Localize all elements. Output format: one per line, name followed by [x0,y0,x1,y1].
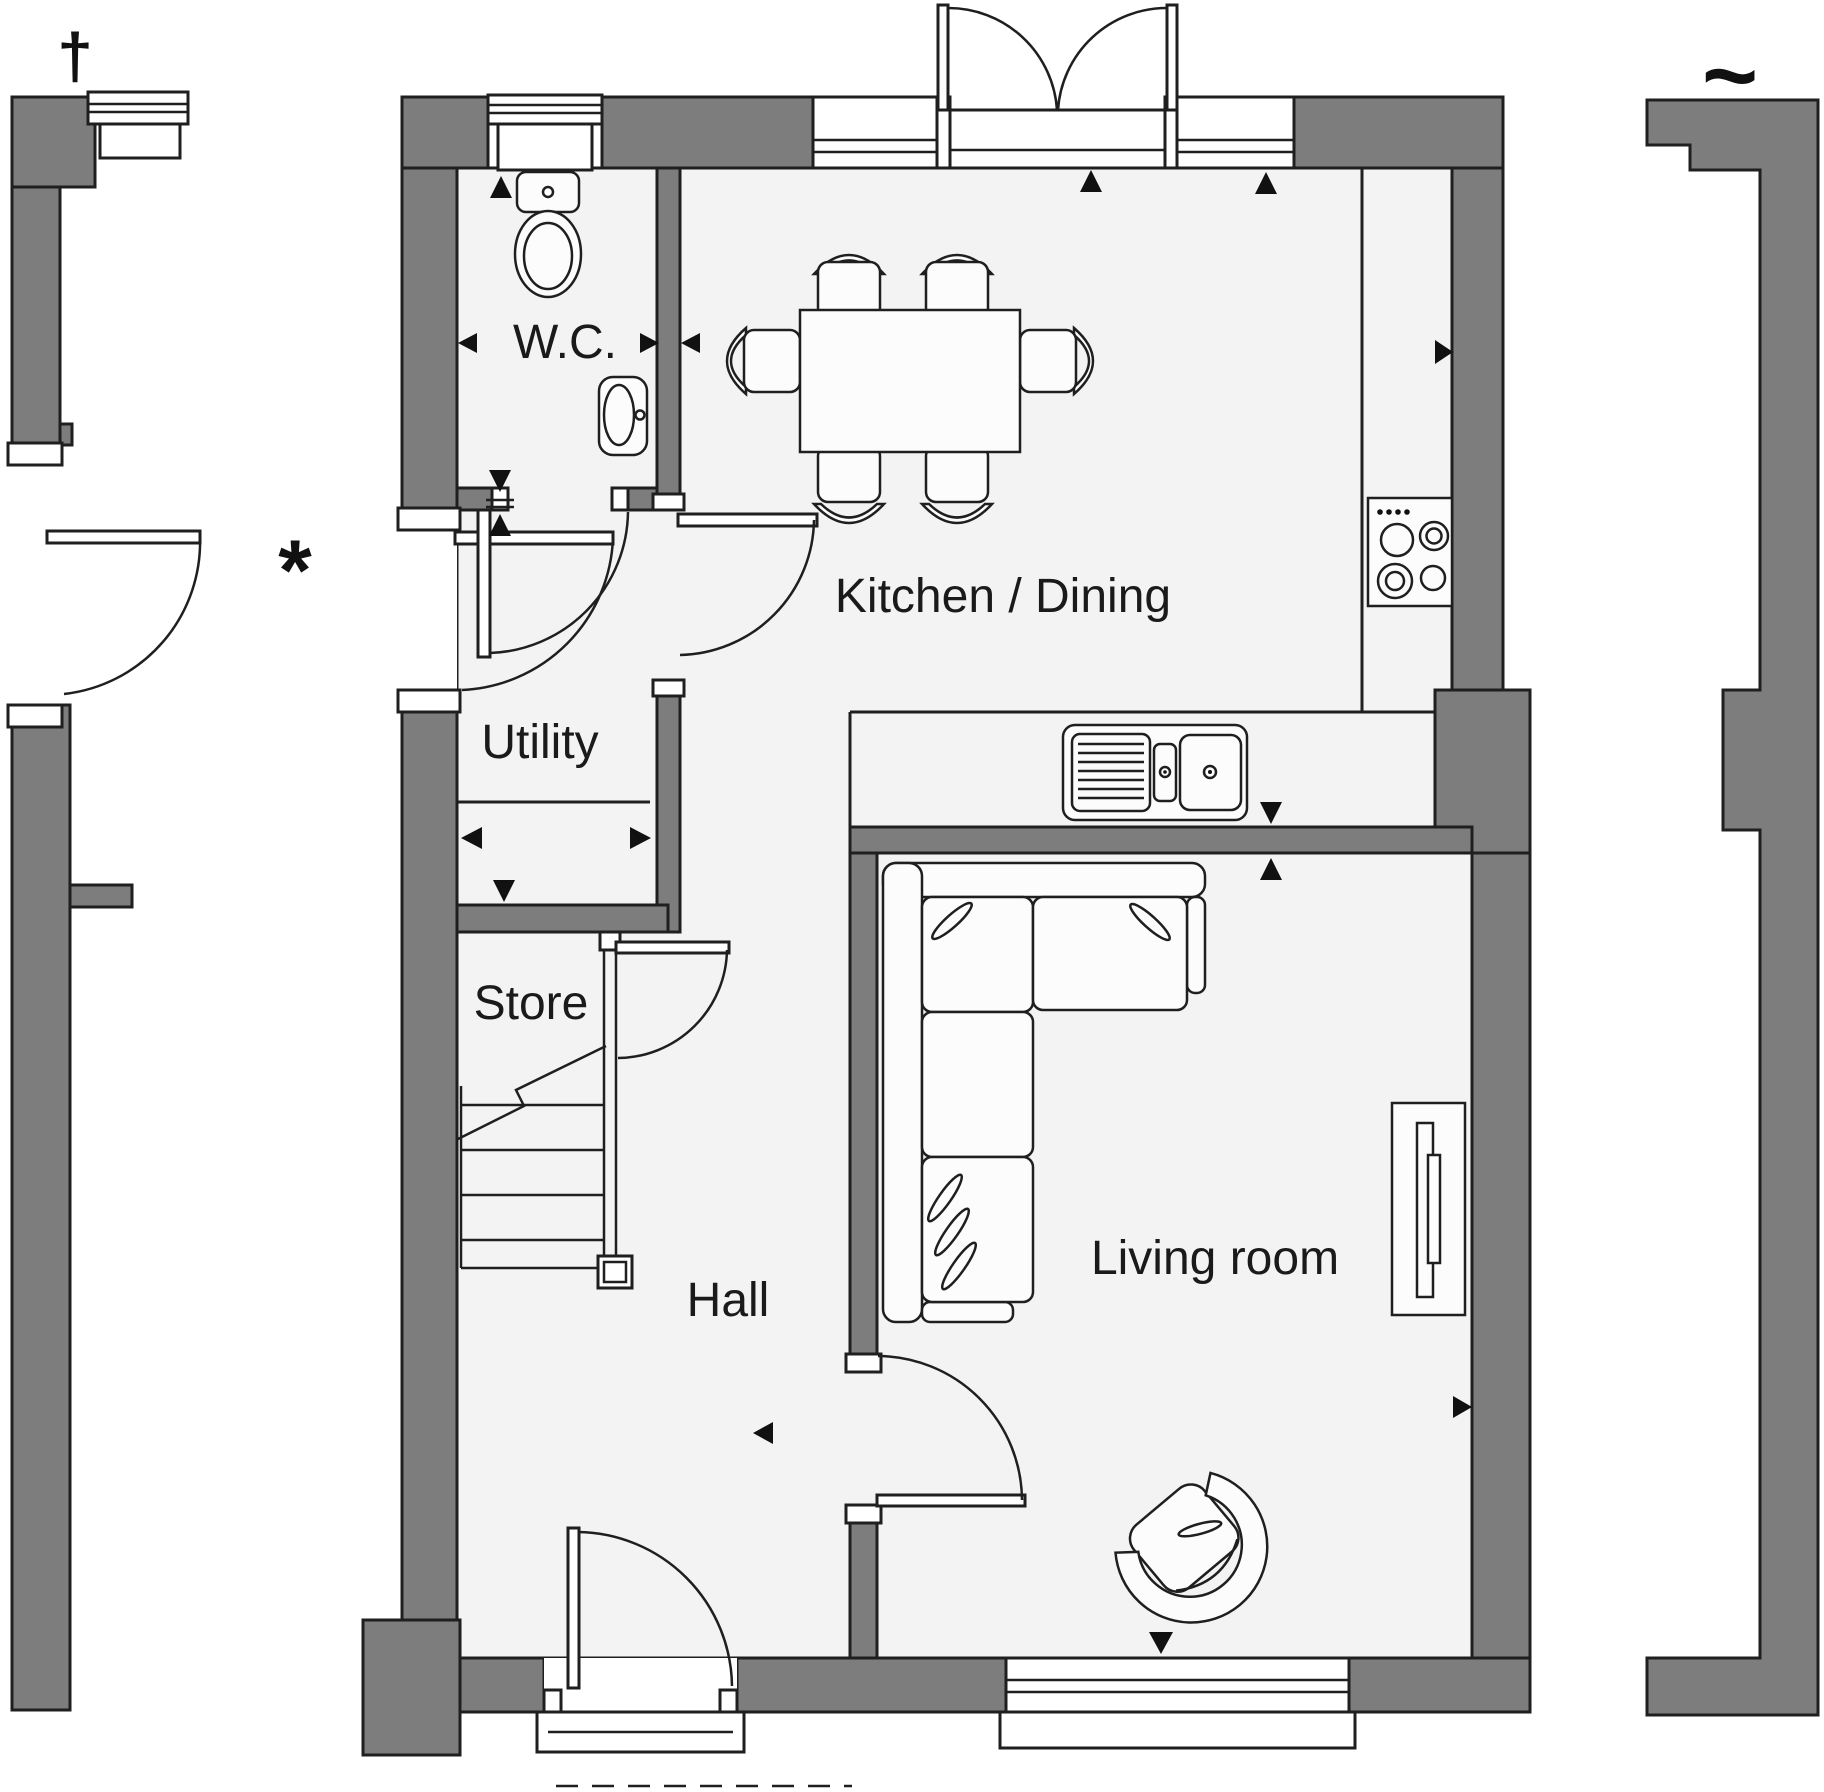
window-left [813,97,937,168]
dining-chair [1020,330,1076,392]
wall-right-strip [1647,100,1818,1715]
wall-right-living [1472,853,1530,1658]
room-label-kitchen: Kitchen / Dining [835,570,1171,623]
neighbour-door [8,443,200,727]
wall-bottom-c [1349,1658,1530,1712]
door-swing-arc [64,537,200,694]
patio-swing-right [1058,8,1167,110]
wall-left-a [402,168,457,508]
door-leaf [678,514,817,526]
patio-swing-left [948,8,1057,110]
dining-chair [744,330,800,392]
wall-left-strip-low [12,705,70,1710]
wall-bottom-b [737,1658,1006,1712]
hob-icon [1368,498,1452,606]
wall-left-strip-stub [70,885,132,907]
door-leaf [568,1528,579,1688]
patio-leaf-left [938,5,948,110]
patio-door-assembly [813,5,1294,194]
wall-hall-living-upper [850,853,877,1372]
wall-wc-divider-upper [657,168,680,510]
dining-chair [818,446,880,502]
tilde-symbol: ~ [1702,22,1758,129]
wall-right-kitchen [1452,168,1503,690]
wall-top-b [602,97,813,168]
asterisk-symbol: * [278,523,312,619]
room-label-store: Store [474,977,589,1030]
window-right [1177,97,1294,168]
room-label-utility: Utility [481,716,598,769]
wash-basin-icon [599,377,647,455]
wall-utility-store [457,905,668,932]
door-leaf [478,510,490,657]
wall-top-c [1294,97,1503,168]
wall-left-b [402,712,457,1620]
wall-foot-left [363,1620,460,1755]
wall-bottom-a [460,1658,544,1712]
wall-kitchen-living [850,827,1472,853]
dagger-symbol: † [57,20,93,92]
door-leaf [616,942,729,953]
kitchen-sink-icon [1063,725,1247,820]
wall-wc-divider-lower [657,680,680,932]
room-label-wc: W.C. [513,316,617,369]
dining-table [800,310,1020,452]
floor-plan-page: W.C. Kitchen / Dining Utility Store Hall… [0,0,1824,1792]
wall-top-a [402,97,488,168]
room-label-hall: Hall [687,1274,770,1327]
neighbour-window [88,92,188,158]
wall-left-strip-top [12,97,95,187]
tv-unit-icon [1392,1103,1465,1315]
toilet-icon [515,172,581,297]
wall-left-strip-mid [12,187,60,445]
floor-plan-drawing: W.C. Kitchen / Dining Utility Store Hall… [0,0,1824,1792]
door-leaf [47,531,200,543]
patio-leaf-right [1167,5,1177,110]
room-label-living: Living room [1091,1232,1339,1285]
door-leaf [877,1495,1025,1506]
dining-chair [926,446,988,502]
wall-hall-living-lower [850,1505,877,1658]
